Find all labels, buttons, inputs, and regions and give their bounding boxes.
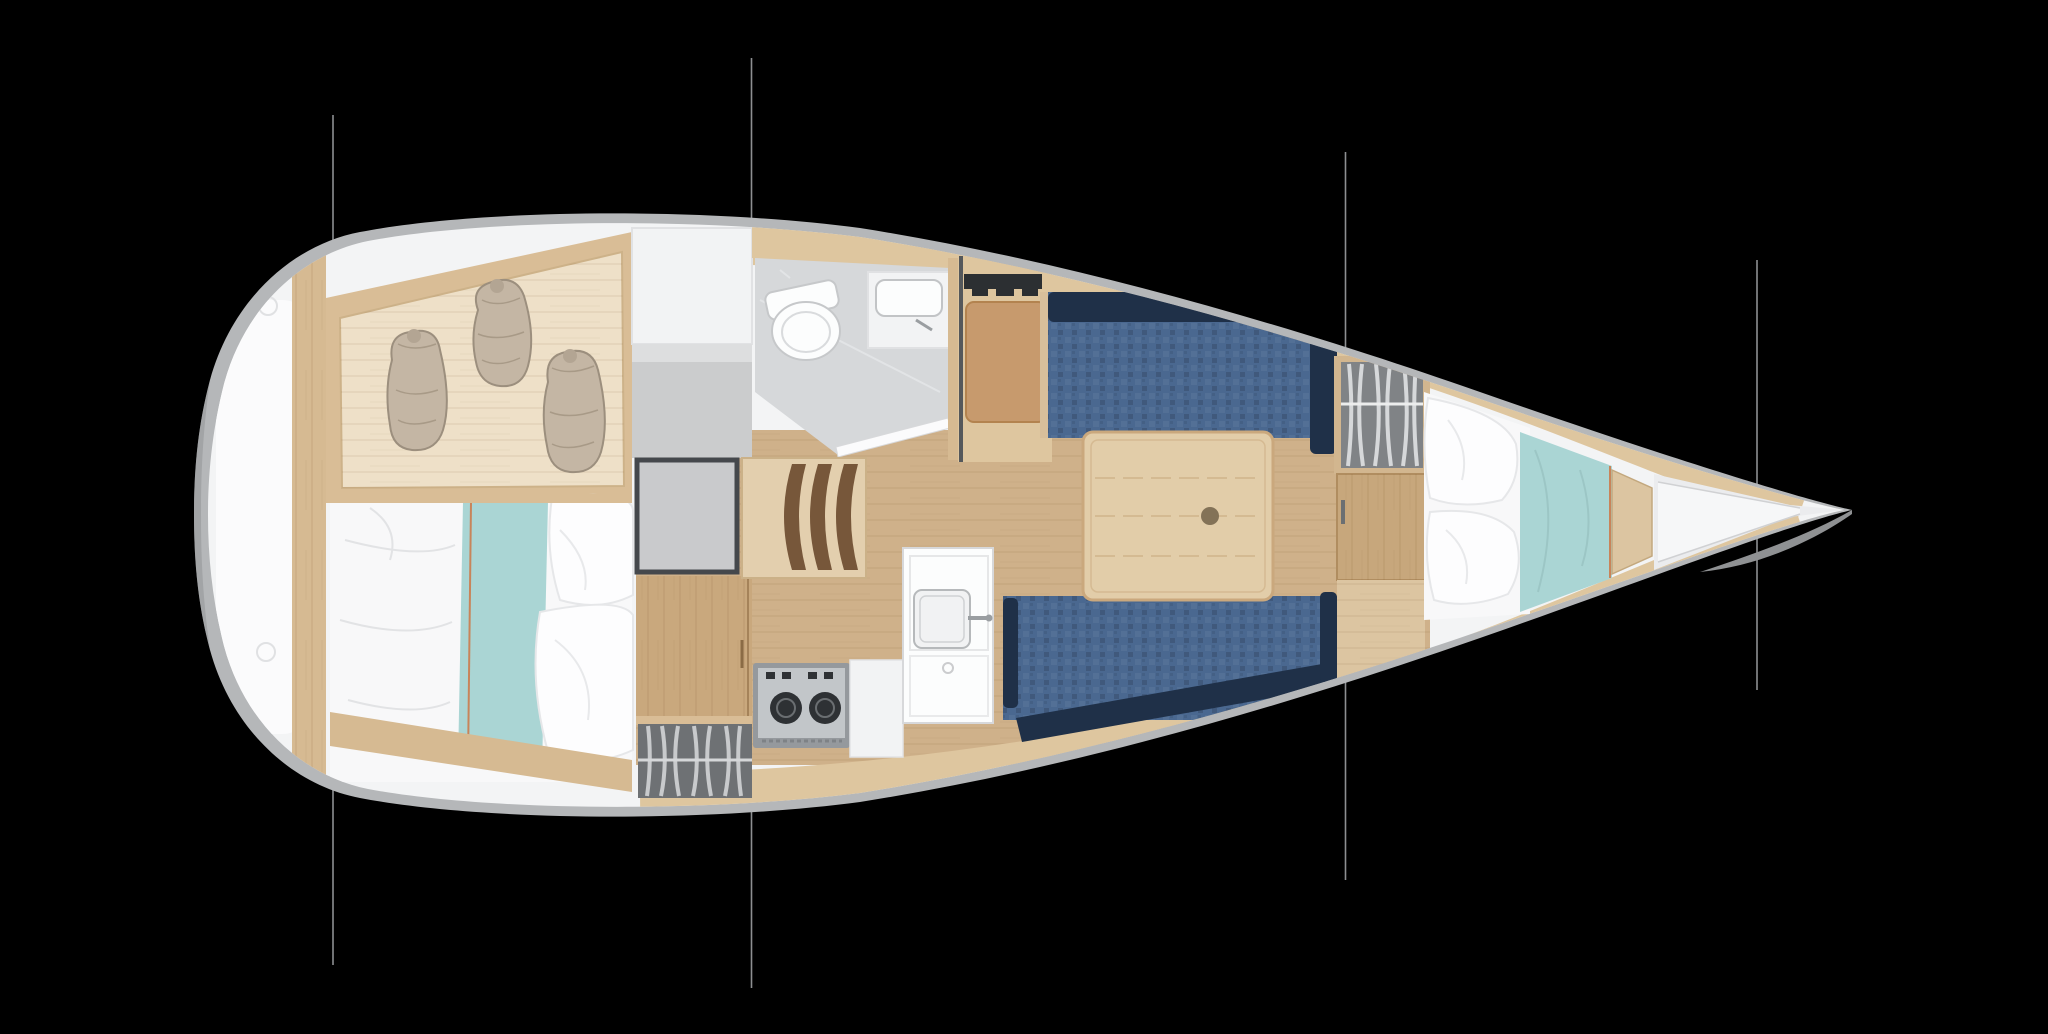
white-cabinet	[632, 228, 752, 344]
table-knob	[1201, 507, 1219, 525]
companionway-steps	[742, 458, 866, 578]
galley-sink-unit	[903, 548, 993, 723]
head-sink	[868, 272, 950, 348]
berth-pillow	[536, 605, 634, 761]
instrument-panel	[964, 274, 1042, 296]
gray-cabinet-highlight	[632, 344, 752, 362]
mid-cabinets	[632, 228, 752, 798]
burner	[809, 692, 841, 724]
door-grain	[1337, 474, 1425, 580]
aft-berth	[326, 494, 633, 792]
vberth-pillow	[1427, 511, 1519, 604]
vberth-foot-trim	[1612, 470, 1652, 574]
stove	[753, 663, 850, 748]
aft-cabin	[292, 232, 633, 796]
settee-end-cushion	[1003, 598, 1018, 708]
floorplan-canvas	[0, 0, 2048, 1034]
hanging-locker-aft	[638, 724, 752, 798]
salon-table	[1083, 432, 1273, 600]
nav-seat-cushion	[966, 302, 1046, 422]
locker-trim	[636, 716, 752, 725]
berth-pillow	[549, 495, 633, 605]
settee-end-cushion	[1320, 592, 1337, 682]
icebox	[637, 460, 737, 572]
nav-area	[958, 256, 1052, 462]
storage-bag	[473, 279, 531, 386]
forward-cabin-door	[1337, 474, 1425, 580]
post-grain	[292, 240, 326, 796]
sink-basin	[914, 590, 970, 648]
boat-floorplan	[0, 0, 2048, 1034]
storage-bag	[387, 329, 446, 450]
storage-bag	[544, 349, 605, 472]
galley-counter	[850, 660, 903, 757]
galley-cabinet-grain	[636, 576, 752, 718]
berth-head-trim	[326, 494, 632, 503]
burner	[770, 692, 802, 724]
